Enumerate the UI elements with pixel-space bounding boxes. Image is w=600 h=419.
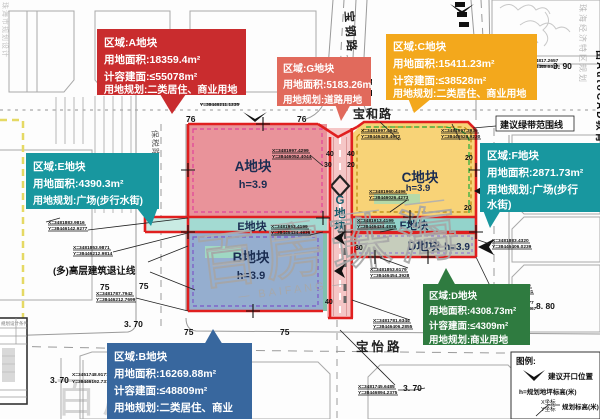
svg-text:用地面积:4308.73m²: 用地面积:4308.73m² [428,305,516,317]
svg-text:计容建面:≤55078m²: 计容建面:≤55078m² [104,70,198,83]
svg-text:用地规划:商业用地: 用地规划:商业用地 [428,334,509,346]
svg-text:75: 75 [280,327,290,337]
svg-text:(多)高层建筑退让线: (多)高层建筑退让线 [53,265,136,277]
svg-text:40: 40 [326,151,334,158]
svg-text:8. 80: 8. 80 [536,301,555,311]
svg-text:h=规划地坪标高(米): h=规划地坪标高(米) [519,387,577,396]
svg-text:用地规划:道路用地: 用地规划:道路用地 [282,94,363,106]
svg-text:用地规划:二类居住、商业用地: 用地规划:二类居住、商业用地 [103,83,237,96]
svg-text:区域:G地块: 区域:G地块 [283,62,335,75]
svg-text:用地面积:18359.4m²: 用地面积:18359.4m² [103,53,201,66]
svg-text:76: 76 [186,114,196,124]
svg-text:用地规划:广场(步行水街): 用地规划:广场(步行水街) [32,194,143,207]
svg-text:区域:F地块: 区域:F地块 [487,149,539,162]
svg-text:20: 20 [347,162,355,169]
svg-text:75: 75 [100,282,110,292]
svg-text:区域:B地块: 区域:B地块 [114,350,168,363]
svg-text:3. 70: 3. 70 [403,383,422,393]
svg-text:保税路: 保税路 [150,130,161,157]
svg-text:用地面积:15411.23m²: 用地面积:15411.23m² [392,57,495,70]
svg-text:40: 40 [325,299,333,306]
svg-text:规划设计条件: 规划设计条件 [1,320,28,327]
svg-text:珠海市规划设计: 珠海市规划设计 [1,2,10,58]
svg-text:计容建面:≤38528m²: 计容建面:≤38528m² [393,74,487,87]
svg-text:3. 70: 3. 70 [124,319,143,329]
svg-text:珠海经济特区规划: 珠海经济特区规划 [578,4,588,84]
svg-text:A地块: A地块 [235,158,272,174]
svg-text:Y=38446192.7375: Y=38446192.7375 [72,379,112,385]
svg-text:75: 75 [139,281,149,291]
svg-text:用地面积:4390.3m²: 用地面积:4390.3m² [32,177,124,190]
svg-text:G: G [336,195,345,207]
svg-text:20: 20 [464,205,472,212]
svg-text:图例:: 图例: [516,356,536,366]
svg-text:用地面积:16269.88m²: 用地面积:16269.88m² [113,367,217,380]
svg-text:计容建面:≤48809m²: 计容建面:≤48809m² [114,384,208,397]
svg-text:X=3451748.9177: X=3451748.9177 [72,372,109,378]
svg-text:区域:E地块: 区域:E地块 [33,160,86,173]
svg-text:用地面积:2871.73m²: 用地面积:2871.73m² [486,166,584,179]
svg-text:75: 75 [184,327,194,337]
svg-text:30: 30 [324,162,332,169]
svg-text:宝怡路: 宝怡路 [356,339,403,354]
svg-text:规划标高(米): 规划标高(米) [562,402,599,411]
svg-text:用地规划:广场(步行: 用地规划:广场(步行 [486,183,578,196]
svg-text:区域:A地块: 区域:A地块 [104,36,158,49]
svg-text:用地规划:二类居住、商业: 用地规划:二类居住、商业 [113,401,233,414]
svg-text:40: 40 [347,151,355,158]
svg-text:用地规划:二类居住、商业用地: 用地规划:二类居住、商业用地 [392,87,526,100]
svg-text:计容建面:≤4309m²: 计容建面:≤4309m² [429,320,508,332]
svg-text:建议开口位置: 建议开口位置 [547,371,593,381]
svg-text:建议绿带范围线: 建议绿带范围线 [500,119,563,130]
svg-text:20: 20 [465,155,473,162]
svg-text:h=3.9: h=3.9 [239,179,267,191]
svg-text:76: 76 [297,114,307,124]
svg-text:用地面积:5183.26m²: 用地面积:5183.26m² [282,78,375,91]
svg-text:3. 70: 3. 70 [50,375,69,385]
svg-text:h=3.9: h=3.9 [406,183,431,194]
svg-text:30: 30 [355,245,363,252]
svg-text:宝和路: 宝和路 [353,106,392,121]
svg-text:区域:D地块: 区域:D地块 [429,290,478,302]
svg-text:区域:C地块: 区域:C地块 [393,40,447,53]
svg-text:Y=38446211.1235: Y=38446211.1235 [200,102,239,108]
svg-text:水街): 水街) [486,198,512,211]
